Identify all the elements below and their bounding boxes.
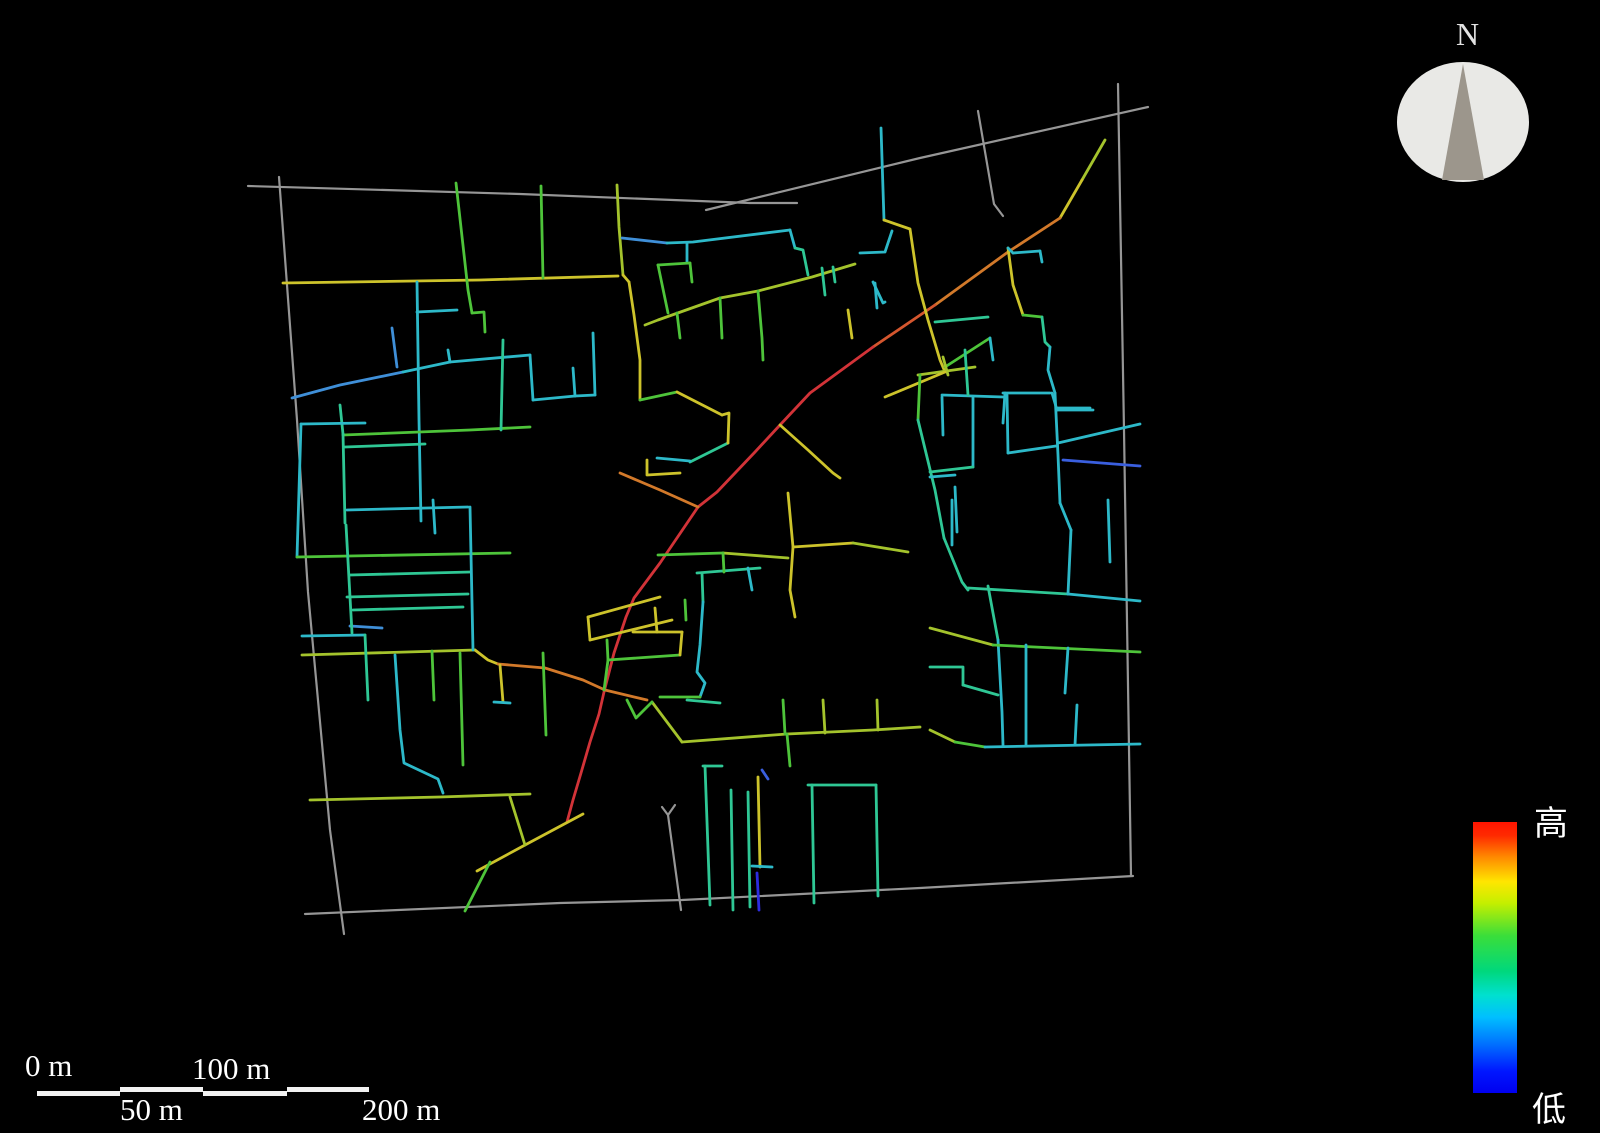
boundary-road [1118, 84, 1131, 876]
street-segment [787, 734, 790, 766]
street-segment [350, 626, 382, 628]
street-segment [658, 265, 668, 313]
street-segment [345, 444, 425, 447]
scale-label-50m: 50 m [120, 1092, 183, 1128]
street-segment [403, 362, 450, 372]
street-segment [640, 392, 677, 400]
street-segment [417, 310, 457, 312]
scale-bar: 0 m 100 m 50 m 200 m [0, 1030, 500, 1130]
scale-label-0m: 0 m [25, 1048, 72, 1084]
street-segment [783, 700, 785, 734]
street-segment [823, 700, 825, 733]
street-segment [848, 310, 852, 338]
street-segment [685, 600, 686, 620]
street-segment [1023, 315, 1042, 317]
street-segment [942, 397, 943, 435]
street-segment [788, 493, 795, 617]
street-segment [1042, 317, 1050, 347]
compass-rose: N [1388, 8, 1548, 188]
scale-label-100m: 100 m [192, 1051, 270, 1087]
street-segment [677, 392, 722, 415]
street-segment [965, 350, 968, 395]
street-segment [757, 873, 759, 910]
color-legend: 高 低 [1450, 790, 1600, 1120]
street-segment [658, 263, 690, 265]
street-segment [1063, 460, 1140, 466]
street-segment [456, 183, 472, 313]
street-segment [877, 700, 878, 730]
street-segment [346, 525, 352, 633]
scale-label-200m: 200 m [362, 1092, 440, 1128]
street-segment [472, 312, 485, 332]
street-segment [955, 487, 957, 532]
street-segment [790, 230, 795, 248]
legend-high-label: 高 [1534, 796, 1568, 845]
street-segment [930, 667, 963, 685]
street-segment [1068, 594, 1140, 601]
street-segment [477, 814, 583, 871]
street-segment [292, 372, 403, 398]
street-segment [762, 770, 768, 779]
legend-low-label: 低 [1532, 1082, 1566, 1131]
street-segment [620, 473, 698, 507]
street-segment [343, 434, 345, 523]
street-segment [881, 128, 884, 220]
street-segment [652, 702, 682, 742]
street-segment [876, 785, 878, 896]
street-segment [301, 423, 365, 424]
street-segment [629, 282, 640, 400]
street-segment [392, 328, 397, 367]
boundary-road [305, 876, 1133, 914]
legend-gradient-bar [1473, 822, 1517, 1093]
boundary-road [668, 815, 681, 910]
street-segment [433, 500, 435, 533]
street-segment [853, 543, 908, 552]
street-segment [283, 276, 618, 283]
street-segment [985, 744, 1140, 747]
street-segment [885, 372, 945, 397]
street-segment [748, 792, 750, 907]
street-segment [690, 263, 692, 282]
street-segment [605, 690, 647, 700]
scale-bar-segment [203, 1091, 287, 1096]
street-segment [593, 333, 595, 395]
street-segment [347, 507, 468, 510]
street-segment [1082, 140, 1105, 180]
street-segment [658, 553, 723, 555]
street-segment [731, 790, 733, 910]
street-segment [302, 650, 475, 655]
street-segment [494, 702, 510, 703]
street-segment [450, 355, 530, 362]
street-segment [930, 467, 973, 472]
street-segment [448, 350, 450, 362]
street-segment [647, 460, 680, 475]
street-segment [918, 420, 944, 538]
street-segment [543, 653, 546, 735]
street-segment [945, 338, 990, 367]
street-segment [930, 475, 955, 477]
street-segment [833, 267, 835, 282]
street-segment [1008, 446, 1056, 453]
street-segment [590, 620, 672, 640]
street-segment [722, 413, 729, 443]
street-segment [302, 635, 365, 636]
street-segment [677, 313, 680, 338]
street-segment [510, 797, 525, 845]
scale-bar-segment [37, 1091, 120, 1096]
street-segment [417, 282, 421, 521]
street-segment [720, 298, 722, 338]
street-segment [530, 355, 533, 400]
street-segment [501, 340, 503, 430]
street-segment [758, 777, 760, 867]
street-segment [1048, 347, 1055, 393]
street-segment [1068, 530, 1071, 594]
street-segment [627, 700, 652, 718]
street-segment [793, 543, 853, 547]
street-segment [470, 507, 473, 650]
street-segment [963, 685, 998, 695]
street-segment [347, 594, 468, 597]
street-segment [607, 640, 608, 660]
street-segment [657, 458, 690, 461]
street-segment [705, 766, 710, 905]
street-segment [690, 443, 728, 462]
street-segment [752, 866, 772, 867]
street-segment [340, 405, 343, 434]
street-segment [795, 248, 808, 275]
scale-bar-segment [287, 1087, 369, 1092]
map-viewport: N 高 低 0 m 100 m 50 m 200 m [0, 0, 1600, 1133]
street-segment [575, 395, 595, 396]
street-segment [541, 186, 543, 278]
street-segment [1075, 705, 1077, 745]
street-segment [297, 553, 510, 557]
street-segment [310, 794, 530, 800]
street-segment [655, 608, 657, 632]
street-segment [1008, 248, 1023, 315]
street-segment [682, 727, 920, 742]
street-segment [475, 650, 498, 664]
street-segment [1007, 395, 1008, 453]
street-segment [432, 651, 434, 700]
street-segment [1108, 500, 1110, 562]
street-segment [365, 635, 368, 700]
street-segment [758, 291, 763, 360]
street-segment [608, 655, 680, 660]
street-segment [930, 628, 993, 645]
street-segment [723, 553, 724, 572]
boundary-road [662, 805, 675, 815]
street-segment [998, 640, 1003, 745]
street-segment [500, 665, 503, 702]
street-segment [667, 230, 790, 243]
street-segment [350, 572, 470, 575]
street-segment [1013, 251, 1040, 253]
street-segment [353, 607, 463, 610]
boundary-road [248, 186, 797, 203]
street-segment [567, 347, 873, 822]
street-segment [1065, 648, 1068, 693]
street-segment [748, 568, 752, 590]
street-segment [1003, 393, 1005, 423]
street-segment [460, 653, 463, 765]
street-segment [955, 742, 985, 747]
street-segment [968, 588, 1068, 594]
street-segment [622, 238, 667, 243]
street-segment [930, 730, 955, 742]
street-segment [723, 553, 788, 558]
street-segment [573, 368, 575, 396]
street-segment [918, 375, 920, 420]
compass-north-label: N [1388, 16, 1548, 53]
street-segment [498, 664, 605, 690]
street-segment [860, 231, 892, 253]
street-segment [533, 396, 575, 400]
boundary-road [978, 111, 1003, 216]
street-segment [990, 338, 993, 360]
street-segment [884, 220, 945, 372]
street-segment [1060, 180, 1082, 218]
street-segment [780, 425, 840, 478]
street-network-svg[interactable] [0, 0, 1600, 1133]
boundary-road [706, 107, 1148, 210]
street-segment [1058, 424, 1140, 443]
north-arrow-icon [1388, 52, 1548, 192]
street-segment [687, 700, 720, 703]
street-segment [1060, 503, 1071, 530]
street-segment [1040, 251, 1042, 262]
street-segment [702, 573, 703, 602]
street-segment [680, 632, 682, 655]
street-segment [988, 586, 998, 640]
street-segment [944, 538, 968, 590]
street-segment [812, 785, 814, 903]
street-segment [588, 617, 590, 640]
street-segment [395, 655, 443, 793]
street-segment [604, 660, 608, 690]
street-segment [588, 597, 660, 617]
street-segment [697, 568, 760, 573]
street-segment [697, 602, 705, 697]
street-segment [935, 317, 988, 322]
